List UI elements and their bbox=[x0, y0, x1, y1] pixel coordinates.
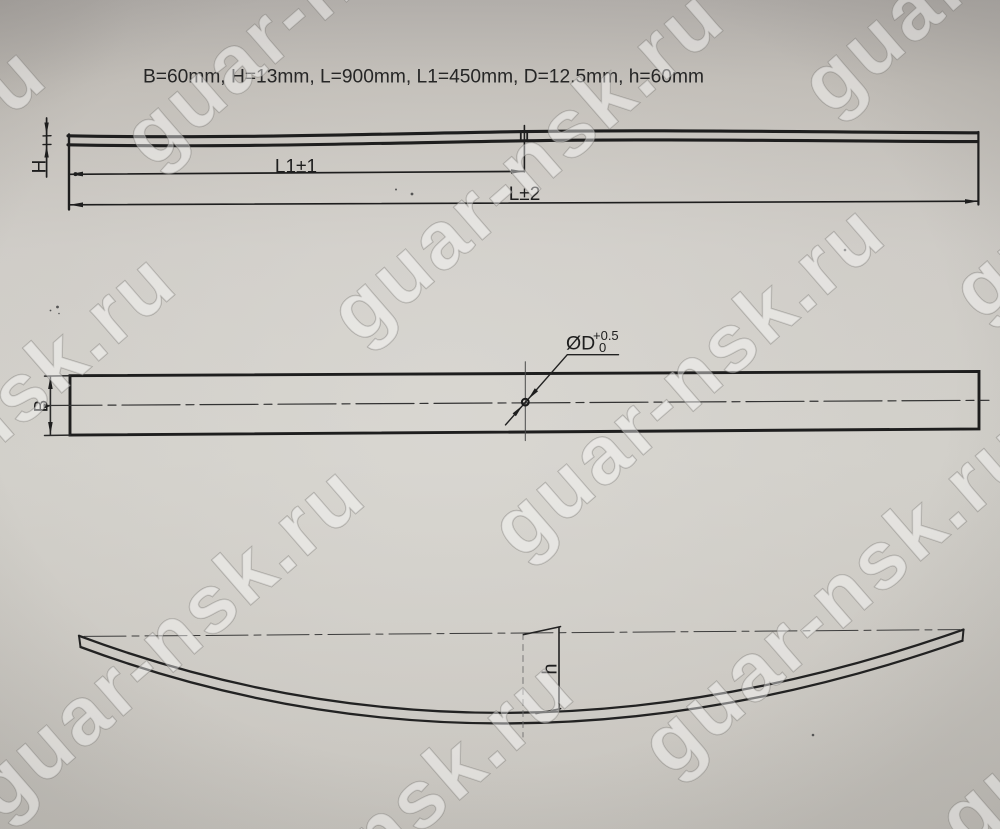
svg-text:H: H bbox=[30, 160, 51, 174]
svg-text:0: 0 bbox=[599, 340, 606, 355]
svg-text:L1±1: L1±1 bbox=[275, 157, 317, 178]
svg-text:ØD: ØD bbox=[566, 333, 595, 355]
